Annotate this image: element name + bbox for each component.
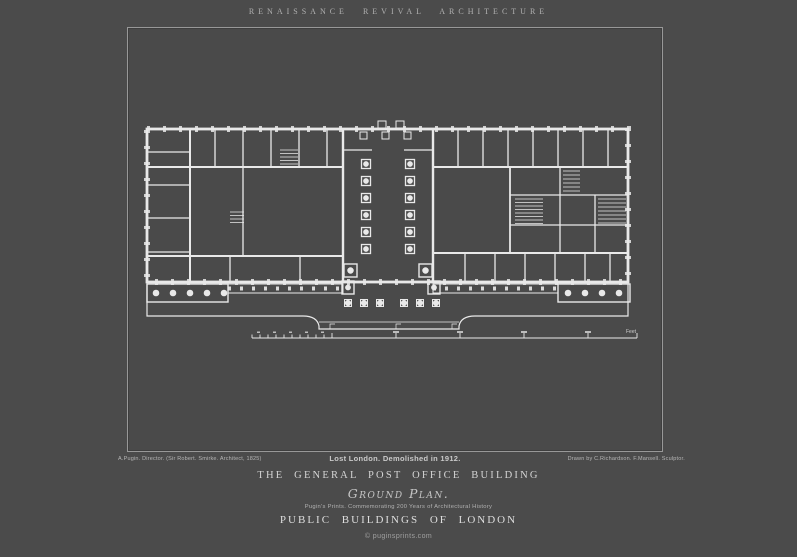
plan-subtitle: Ground Plan. [0, 486, 797, 501]
left-stair-hatching [280, 150, 298, 164]
left-wing-walls [147, 129, 343, 282]
central-hall [343, 121, 433, 282]
portico-columns [342, 281, 440, 307]
floor-plan-drawing: Feet [140, 118, 640, 346]
credit-drawn-by: Drawn by C.Richardson. F.Mansell. Sculpt… [568, 456, 685, 462]
building-outline [147, 129, 628, 282]
front-steps [147, 284, 628, 329]
page-title: THE GENERAL POST OFFICE BUILDING [0, 470, 797, 481]
series-title: PUBLIC BUILDINGS OF LONDON [0, 514, 797, 526]
footer-website: © puginsprints.com [0, 533, 797, 540]
poster: { "poster": { "banner": "RENAISSANCE REV… [0, 0, 797, 557]
banner-title: RENAISSANCE REVIVAL ARCHITECTURE [0, 7, 797, 16]
right-wing-walls [433, 129, 628, 282]
front-colonnade [147, 284, 630, 302]
tagline: Pugin's Prints. Commemorating 200 Years … [0, 504, 797, 510]
staircase-hatching [515, 171, 626, 224]
column-grid [344, 160, 432, 278]
scale-bar: Feet [252, 329, 637, 338]
scale-bar-label: Feet [626, 329, 637, 335]
